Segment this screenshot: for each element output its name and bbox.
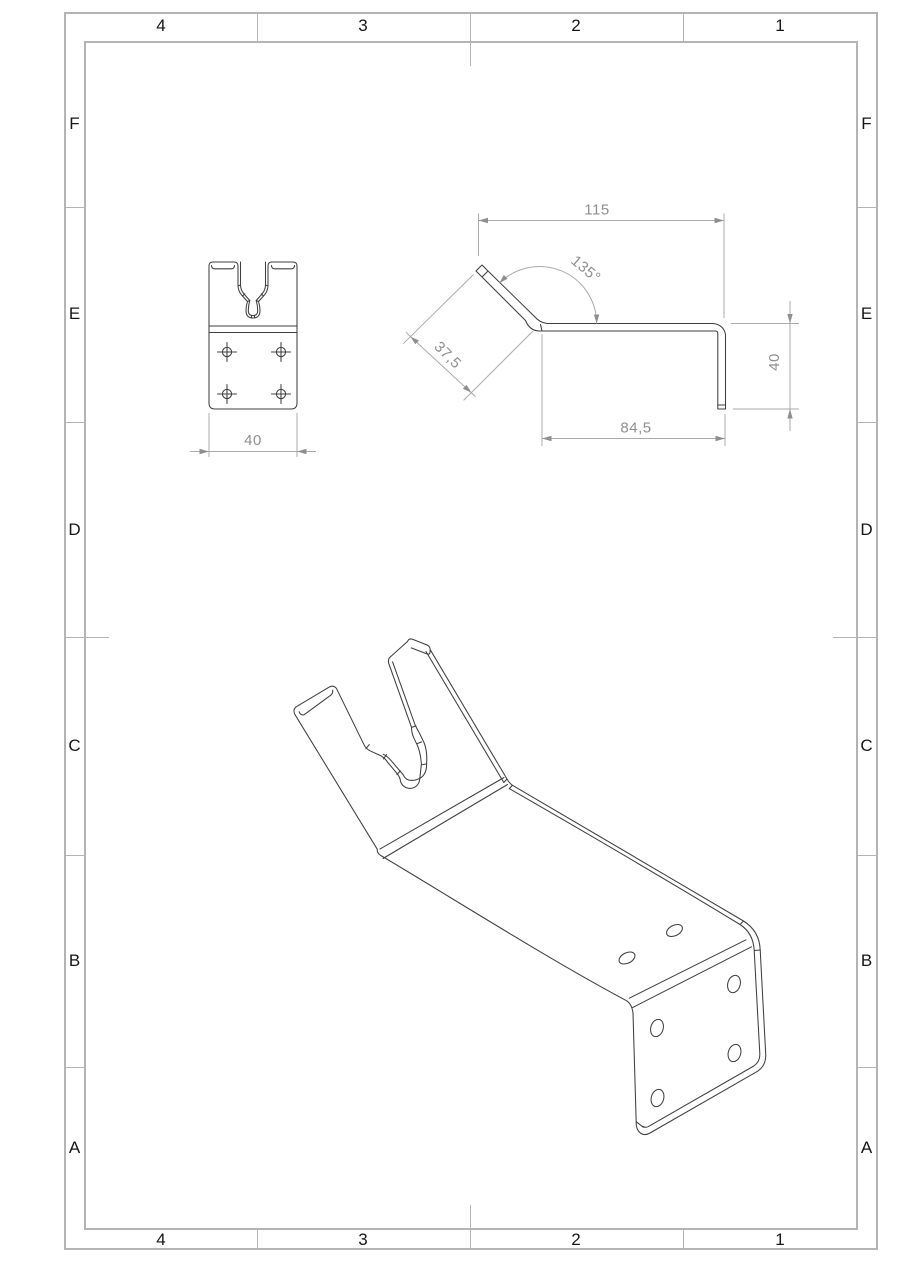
iso-holes (617, 922, 743, 1108)
iso-flange-bend-lines (629, 940, 751, 1008)
dim-text: 40 (244, 432, 262, 449)
hole (617, 950, 637, 967)
extension-lines (479, 214, 725, 319)
side-dim-arm-length: 37,5 (403, 275, 533, 401)
arrowhead (200, 449, 210, 454)
arrowhead (594, 315, 599, 324)
iso-edge-thickness-lines (426, 652, 760, 1128)
iso-prong-fold-lines (299, 648, 430, 715)
front-outline (209, 262, 297, 409)
dim-text: 37,5 (431, 338, 465, 372)
dim-text: 84,5 (620, 420, 651, 437)
extension-lines (403, 275, 533, 401)
dim-text: 40 (766, 353, 783, 371)
arrowhead (787, 409, 792, 419)
extension-lines (731, 324, 799, 410)
iso-fork-bend-lines (380, 778, 508, 859)
hole (665, 922, 685, 939)
arrowhead (542, 436, 552, 441)
arrowhead (479, 218, 489, 223)
drawing-sheet: { "sheet": { "columns": ["4", "3", "2", … (0, 0, 900, 1273)
dim-text: 135° (568, 252, 604, 286)
hole-crosshairs (218, 343, 291, 404)
arrowhead (297, 449, 307, 454)
side-dim-overall-width: 115 (479, 202, 725, 319)
side-dim-bend-angle: 135° (499, 252, 603, 323)
front-view: 40 (190, 262, 316, 457)
hole (649, 1088, 666, 1108)
side-outline (476, 265, 726, 409)
isometric-view (294, 639, 766, 1135)
arrowhead (716, 436, 726, 441)
front-holes (218, 343, 291, 404)
arrowhead (715, 218, 725, 223)
front-notch-inner-edge (241, 262, 266, 316)
front-prong-fold-lines (212, 266, 295, 269)
front-bend-lines (209, 326, 297, 333)
side-dim-base-length: 84,5 (542, 334, 725, 446)
front-notch-ticks (238, 285, 268, 318)
hole (726, 1043, 743, 1063)
iso-slot-ticks (366, 726, 426, 775)
dim-text: 115 (584, 202, 609, 219)
drawing-canvas: 40 115 135° 37,5 (0, 0, 900, 1273)
hole (649, 1018, 666, 1038)
hole (726, 974, 743, 994)
arrowhead (499, 275, 507, 283)
arrowhead (787, 314, 792, 324)
side-profile-view: 115 135° 37,5 84,5 40 (403, 202, 799, 447)
side-dim-height: 40 (731, 301, 799, 431)
front-dim-width: 40 (190, 413, 316, 457)
iso-silhouette (294, 639, 766, 1135)
iso-slot-thickness-lines (383, 662, 427, 781)
